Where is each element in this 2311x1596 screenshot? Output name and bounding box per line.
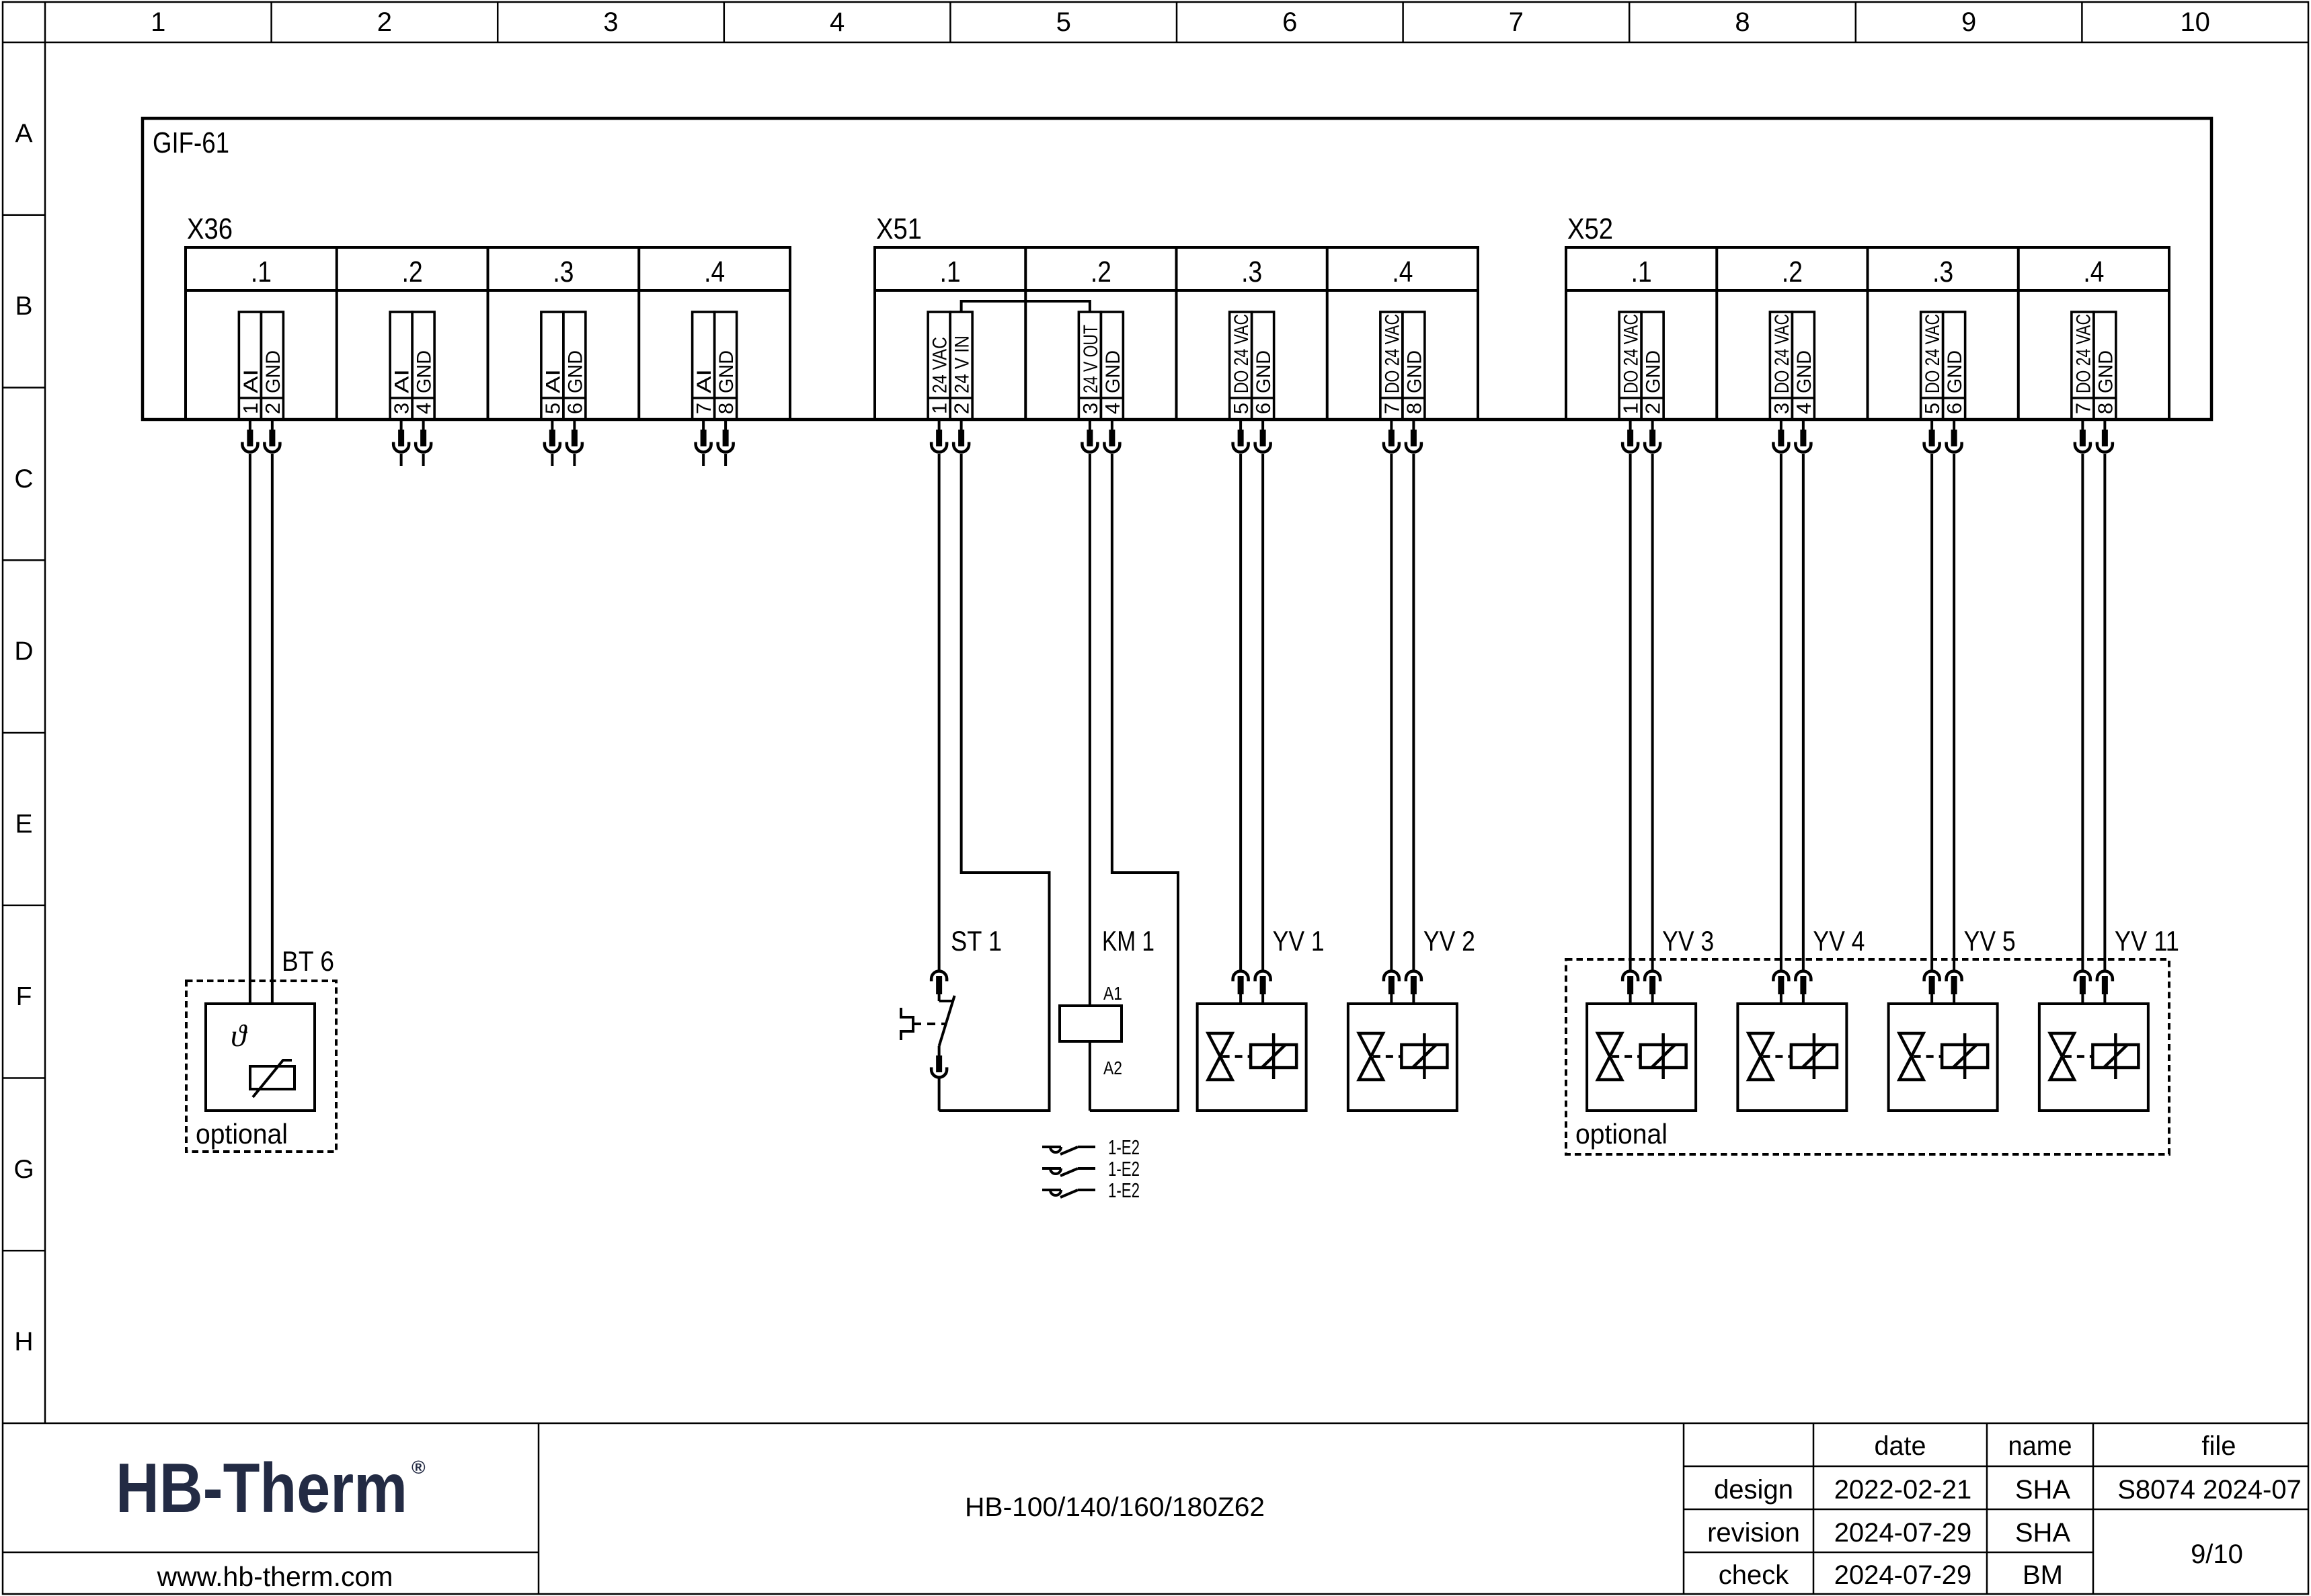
svg-text:HB-Therm: HB-Therm: [116, 1449, 407, 1527]
svg-text:DO 24 VAC: DO 24 VAC: [1381, 314, 1403, 393]
svg-text:3: 3: [603, 7, 618, 37]
svg-text:2: 2: [1641, 403, 1665, 414]
svg-text:E: E: [15, 809, 32, 838]
svg-text:GND: GND: [262, 350, 284, 393]
svg-text:2024-07-29: 2024-07-29: [1834, 1560, 1972, 1590]
svg-text:5: 5: [1920, 403, 1944, 414]
svg-text:3: 3: [1079, 403, 1102, 414]
svg-text:4: 4: [412, 403, 436, 414]
svg-text:C: C: [14, 465, 33, 493]
svg-text:5: 5: [1056, 7, 1071, 37]
svg-text:.4: .4: [2083, 255, 2104, 288]
svg-text:A2: A2: [1103, 1058, 1122, 1078]
svg-text:GND: GND: [1253, 350, 1275, 393]
svg-text:GND: GND: [715, 350, 738, 393]
svg-text:GND: GND: [1102, 350, 1124, 393]
svg-text:H: H: [14, 1328, 33, 1357]
svg-text:ϑ: ϑ: [231, 1019, 248, 1053]
svg-text:1: 1: [151, 7, 165, 37]
svg-text:8: 8: [714, 403, 738, 414]
svg-text:YV 11: YV 11: [2115, 925, 2179, 957]
svg-text:24 V OUT: 24 V OUT: [1080, 325, 1102, 393]
svg-text:YV 5: YV 5: [1964, 925, 2016, 957]
svg-text:S8074 2024-07: S8074 2024-07: [2117, 1475, 2302, 1505]
svg-text:DO 24 VAC: DO 24 VAC: [2072, 314, 2094, 393]
svg-text:SHA: SHA: [2015, 1518, 2071, 1548]
svg-text:A: A: [15, 119, 32, 148]
svg-text:6: 6: [563, 403, 586, 414]
svg-text:®: ®: [412, 1457, 426, 1478]
svg-text:GND: GND: [1403, 350, 1425, 393]
svg-text:GND: GND: [1793, 350, 1815, 393]
svg-text:check: check: [1719, 1560, 1789, 1590]
svg-text:name: name: [2008, 1431, 2072, 1461]
svg-text:GND: GND: [1944, 350, 1966, 393]
svg-text:2022-02-21: 2022-02-21: [1834, 1475, 1972, 1505]
svg-text:3: 3: [390, 403, 414, 414]
svg-text:DO 24 VAC: DO 24 VAC: [1771, 314, 1793, 393]
svg-text:X36: X36: [187, 212, 233, 245]
svg-text:1-E2: 1-E2: [1108, 1157, 1140, 1181]
svg-text:.4: .4: [1392, 255, 1413, 288]
svg-text:YV 3: YV 3: [1662, 925, 1714, 957]
svg-text:www.hb-therm.com: www.hb-therm.com: [157, 1561, 393, 1592]
svg-text:8: 8: [1735, 7, 1750, 37]
svg-text:D: D: [14, 637, 33, 666]
svg-text:GND: GND: [2094, 350, 2117, 393]
svg-text:2: 2: [261, 403, 284, 414]
svg-text:DO 24 VAC: DO 24 VAC: [1922, 314, 1944, 393]
svg-text:SHA: SHA: [2015, 1475, 2071, 1505]
svg-text:A1: A1: [1103, 983, 1122, 1004]
svg-text:.2: .2: [1782, 255, 1803, 288]
svg-text:KM 1: KM 1: [1102, 925, 1154, 957]
svg-text:B: B: [15, 292, 32, 321]
svg-text:AI: AI: [391, 369, 414, 393]
svg-text:GND: GND: [564, 350, 586, 393]
svg-text:X51: X51: [876, 212, 922, 245]
svg-text:YV 2: YV 2: [1423, 925, 1475, 957]
svg-text:design: design: [1714, 1475, 1793, 1505]
svg-text:1: 1: [1619, 403, 1643, 414]
svg-text:date: date: [1875, 1431, 1926, 1461]
svg-text:7: 7: [1509, 7, 1524, 37]
svg-text:1-E2: 1-E2: [1108, 1135, 1140, 1159]
svg-text:6: 6: [1282, 7, 1297, 37]
svg-text:.1: .1: [251, 255, 272, 288]
svg-text:4: 4: [1101, 403, 1124, 414]
svg-text:.1: .1: [1631, 255, 1652, 288]
svg-text:9/10: 9/10: [2191, 1540, 2243, 1569]
svg-text:7: 7: [692, 403, 715, 414]
svg-text:.4: .4: [704, 255, 725, 288]
svg-text:.2: .2: [402, 255, 423, 288]
svg-text:BT 6: BT 6: [282, 945, 334, 977]
svg-text:DO 24 VAC: DO 24 VAC: [1620, 314, 1643, 393]
svg-text:4: 4: [1792, 403, 1815, 414]
svg-text:1: 1: [239, 403, 262, 414]
svg-text:.1: .1: [940, 255, 961, 288]
svg-text:1-E2: 1-E2: [1108, 1179, 1140, 1202]
svg-text:ST 1: ST 1: [951, 925, 1002, 957]
svg-text:.3: .3: [1932, 255, 1953, 288]
svg-text:GIF-61: GIF-61: [153, 126, 229, 159]
svg-text:file: file: [2201, 1431, 2236, 1461]
svg-text:10: 10: [2180, 7, 2210, 37]
svg-text:7: 7: [1380, 403, 1403, 414]
svg-text:optional: optional: [196, 1118, 288, 1150]
svg-text:24 VAC: 24 VAC: [929, 337, 951, 393]
svg-text:8: 8: [2093, 403, 2117, 414]
svg-text:1: 1: [928, 403, 951, 414]
svg-text:2: 2: [377, 7, 392, 37]
svg-text:optional: optional: [1575, 1118, 1668, 1150]
svg-text:AI: AI: [693, 369, 715, 393]
svg-text:9: 9: [1961, 7, 1976, 37]
svg-text:24 V IN: 24 V IN: [951, 335, 974, 393]
svg-text:DO 24 VAC: DO 24 VAC: [1230, 314, 1253, 393]
svg-text:3: 3: [1770, 403, 1793, 414]
svg-text:X52: X52: [1567, 212, 1613, 245]
svg-text:2024-07-29: 2024-07-29: [1834, 1518, 1972, 1548]
svg-text:G: G: [13, 1155, 34, 1184]
svg-text:AI: AI: [240, 369, 262, 393]
svg-text:6: 6: [1943, 403, 1966, 414]
svg-text:4: 4: [830, 7, 845, 37]
svg-text:.3: .3: [553, 255, 574, 288]
svg-text:F: F: [16, 982, 32, 1011]
svg-text:.3: .3: [1241, 255, 1262, 288]
svg-text:HB-100/140/160/180Z62: HB-100/140/160/180Z62: [965, 1492, 1265, 1522]
svg-text:5: 5: [541, 403, 564, 414]
svg-text:8: 8: [1402, 403, 1425, 414]
svg-text:AI: AI: [542, 369, 564, 393]
svg-text:BM: BM: [2023, 1560, 2063, 1590]
svg-text:YV 1: YV 1: [1273, 925, 1325, 957]
svg-text:YV 4: YV 4: [1813, 925, 1865, 957]
svg-text:5: 5: [1229, 403, 1253, 414]
svg-text:2: 2: [950, 403, 974, 414]
svg-text:GND: GND: [414, 350, 436, 393]
svg-text:.2: .2: [1091, 255, 1111, 288]
svg-text:GND: GND: [1643, 350, 1665, 393]
svg-text:revision: revision: [1707, 1518, 1800, 1548]
svg-text:7: 7: [2071, 403, 2094, 414]
svg-text:6: 6: [1251, 403, 1275, 414]
